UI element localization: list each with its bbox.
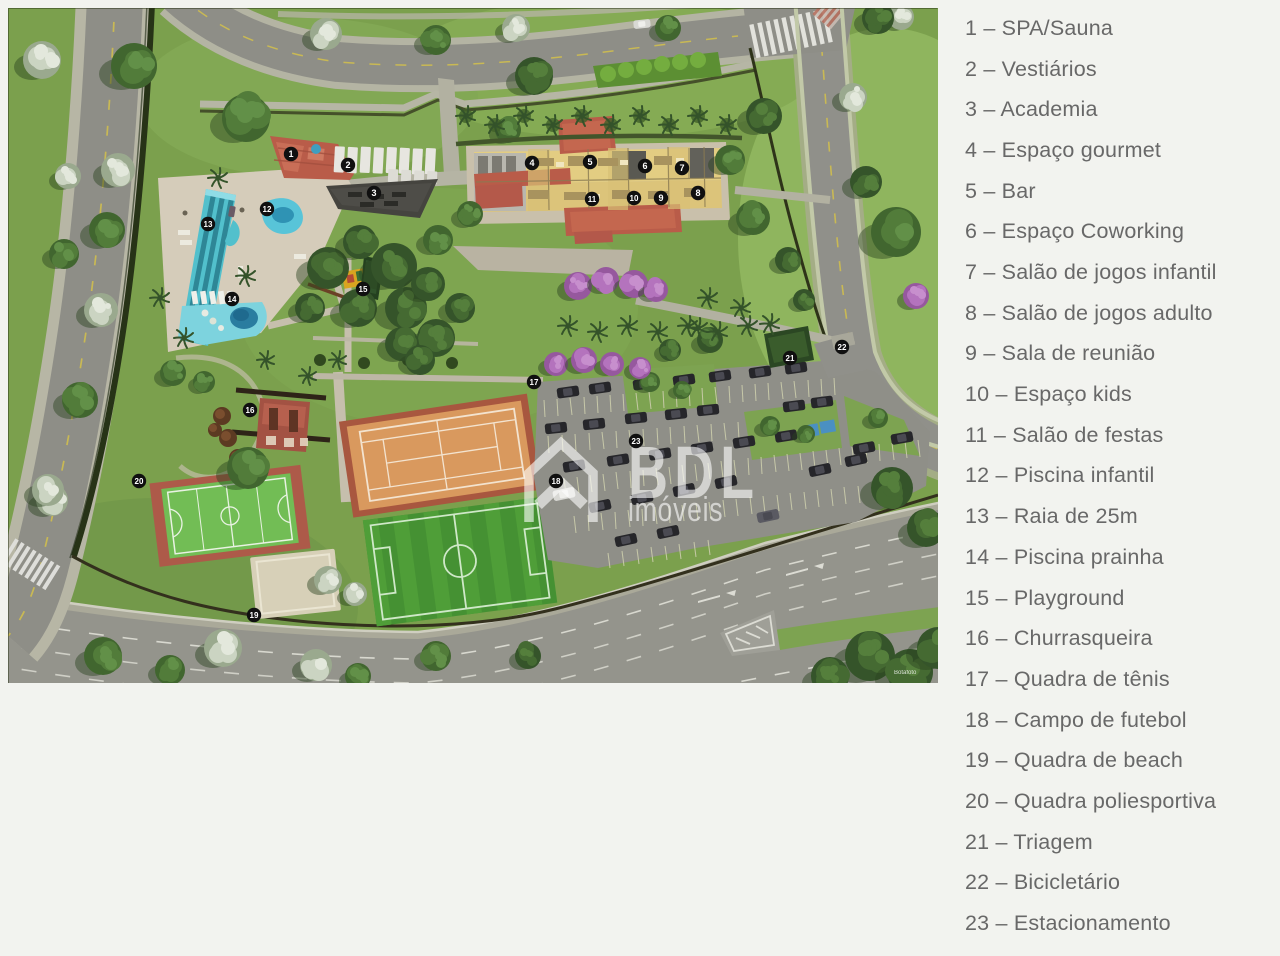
svg-text:1: 1 xyxy=(288,149,293,159)
svg-text:13: 13 xyxy=(204,220,213,229)
svg-text:22: 22 xyxy=(838,343,847,352)
svg-text:20: 20 xyxy=(135,477,144,486)
svg-text:23: 23 xyxy=(632,437,641,446)
svg-text:15: 15 xyxy=(359,285,368,294)
svg-text:3: 3 xyxy=(371,188,376,198)
svg-text:6: 6 xyxy=(642,161,647,171)
svg-text:2: 2 xyxy=(345,160,350,170)
svg-text:imóveis: imóveis xyxy=(628,491,723,529)
svg-text:21: 21 xyxy=(786,354,795,363)
svg-text:14: 14 xyxy=(228,295,237,304)
svg-text:Botafoto: Botafoto xyxy=(894,670,917,676)
svg-text:4: 4 xyxy=(529,158,534,168)
svg-text:12: 12 xyxy=(263,205,272,214)
svg-text:5: 5 xyxy=(587,157,592,167)
svg-text:16: 16 xyxy=(246,406,255,415)
svg-text:8: 8 xyxy=(695,188,700,198)
svg-text:17: 17 xyxy=(530,378,539,387)
svg-text:18: 18 xyxy=(552,477,561,486)
svg-text:19: 19 xyxy=(250,611,259,620)
svg-text:9: 9 xyxy=(658,193,663,203)
svg-text:10: 10 xyxy=(630,194,639,203)
svg-text:7: 7 xyxy=(679,163,684,173)
svg-text:11: 11 xyxy=(588,195,597,204)
